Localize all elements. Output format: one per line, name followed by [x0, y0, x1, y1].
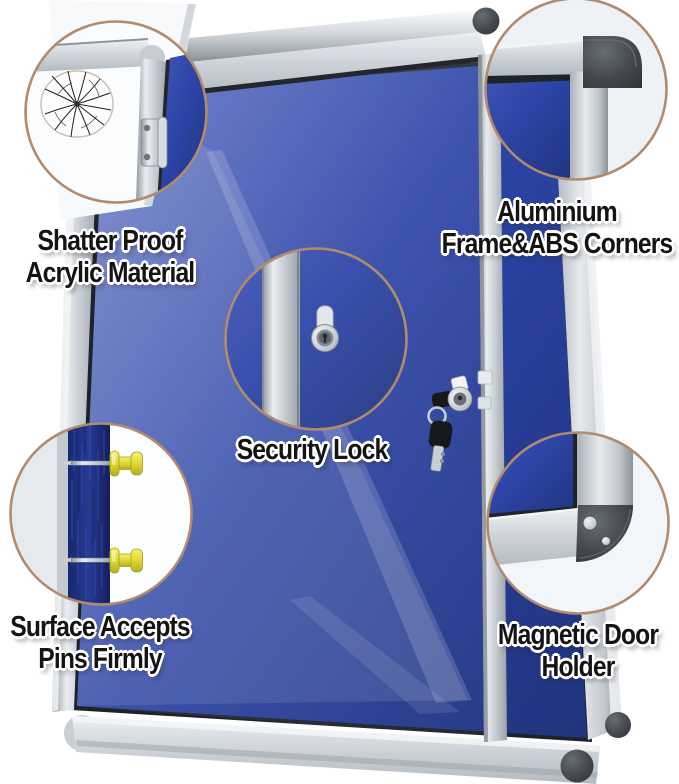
feature-label-magnetic-holder: Magnetic Door Holder — [459, 619, 679, 683]
abs-corner-cap-top-icon — [473, 8, 500, 35]
callout-frame-corner — [483, 0, 667, 180]
feature-label-pin-surface: Surface Accepts Pins Firmly — [0, 611, 219, 675]
abs-corner-icon — [583, 36, 642, 88]
latch-plate-icon — [478, 397, 491, 409]
abs-corner-cap-bottom-right-icon — [605, 712, 631, 738]
product-feature-image: Shatter Proof Acrylic Material Aluminium… — [0, 0, 679, 784]
feature-label-aluminium-frame: Aluminium Frame&ABS Corners — [438, 196, 676, 260]
latch-plate-icon — [478, 371, 492, 384]
frame-side-bar-icon — [577, 430, 633, 510]
hinge-icon — [141, 117, 167, 168]
callout-security-lock — [226, 249, 408, 431]
callout-shatter-proof — [25, 22, 208, 205]
feature-label-security-lock: Security Lock — [193, 434, 431, 466]
cracked-acrylic-icon — [41, 71, 113, 137]
door-edge-strip-icon — [262, 249, 300, 430]
callout-pin-surface — [11, 424, 192, 605]
abs-corner-cap-bottom-icon — [561, 750, 594, 783]
feature-label-shatter-proof: Shatter Proof Acrylic Material — [0, 225, 229, 289]
callout-magnetic-holder — [487, 430, 669, 614]
